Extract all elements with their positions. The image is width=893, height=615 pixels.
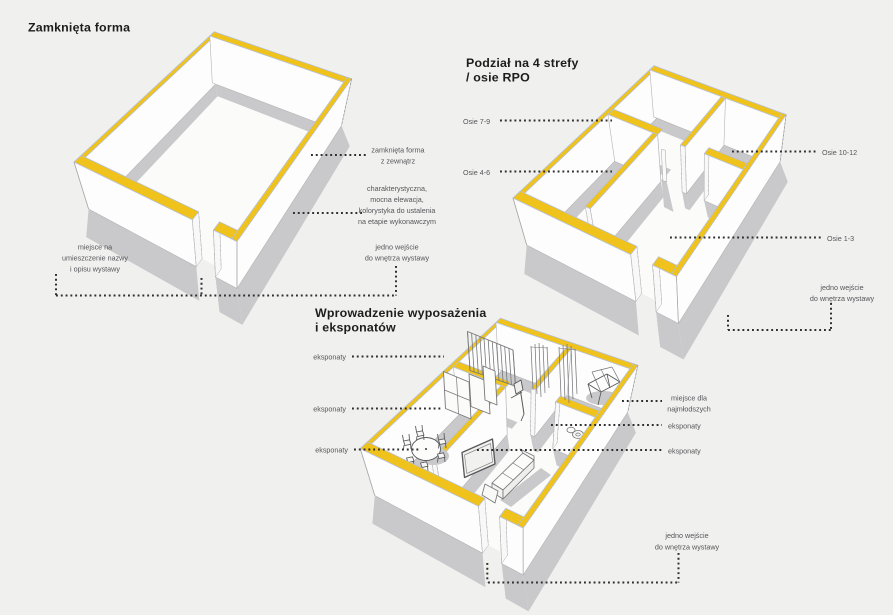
svg-text:z zewnątrz: z zewnątrz [381, 157, 416, 166]
svg-text:eksponaty: eksponaty [313, 405, 346, 414]
svg-text:jedno wejście: jedno wejście [374, 243, 418, 252]
svg-text:miejsce dla: miejsce dla [671, 394, 707, 403]
svg-text:/ osie RPO: / osie RPO [466, 71, 530, 85]
svg-text:umieszczenie nazwy: umieszczenie nazwy [62, 254, 128, 263]
svg-text:eksponaty: eksponaty [668, 447, 701, 456]
svg-text:Podział na 4 strefy: Podział na 4 strefy [466, 56, 579, 70]
svg-text:kolorystyka do ustalenia: kolorystyka do ustalenia [359, 206, 436, 215]
svg-text:Osie 10-12: Osie 10-12 [822, 148, 857, 157]
svg-text:do wnętrza wystawy: do wnętrza wystawy [810, 294, 875, 303]
svg-text:eksponaty: eksponaty [668, 422, 701, 431]
svg-text:charakterystyczna,: charakterystyczna, [367, 184, 427, 193]
svg-text:do wnętrza wystawy: do wnętrza wystawy [655, 543, 720, 552]
svg-text:Osie 7-9: Osie 7-9 [463, 117, 490, 126]
svg-text:eksponaty: eksponaty [313, 353, 346, 362]
svg-text:Wprowadzenie wyposażenia: Wprowadzenie wyposażenia [315, 306, 486, 320]
svg-text:eksponaty: eksponaty [315, 446, 348, 455]
svg-text:miejsce na: miejsce na [78, 243, 112, 252]
svg-text:i opisu wystawy: i opisu wystawy [70, 265, 120, 274]
svg-text:i eksponatów: i eksponatów [315, 321, 396, 335]
svg-text:na etapie wykonawczym: na etapie wykonawczym [358, 217, 436, 226]
svg-text:jedno wejście: jedno wejście [664, 531, 708, 540]
svg-text:Osie 4-6: Osie 4-6 [463, 168, 490, 177]
svg-text:najmłodszych: najmłodszych [667, 405, 711, 414]
svg-text:mocna elewacja,: mocna elewacja, [370, 195, 424, 204]
svg-text:do wnętrza wystawy: do wnętrza wystawy [365, 254, 430, 263]
svg-text:Osie 1-3: Osie 1-3 [827, 234, 854, 243]
svg-text:zamknięta forma: zamknięta forma [371, 146, 424, 155]
svg-text:jedno wejście: jedno wejście [819, 283, 863, 292]
svg-text:Zamknięta forma: Zamknięta forma [28, 21, 130, 35]
